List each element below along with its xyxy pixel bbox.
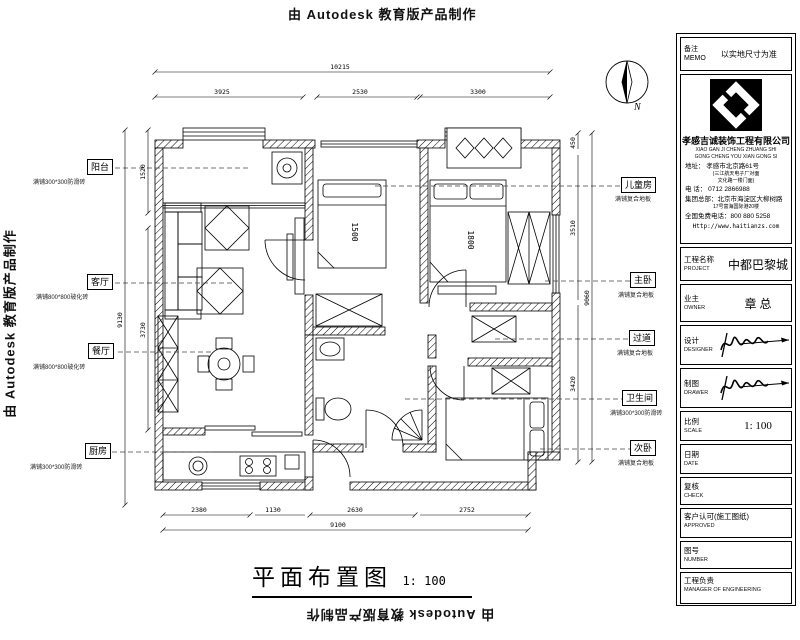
svg-text:3925: 3925 <box>214 88 230 96</box>
room-label-second-bed: 次卧 <box>630 440 656 456</box>
field-date: 日期 DATE <box>680 444 792 474</box>
master-bed-size: 1800 <box>466 230 475 249</box>
svg-text:1130: 1130 <box>265 506 281 514</box>
field-designer: 设计 DESIGNER <box>680 325 792 365</box>
field-scale: 比例 SCALE 1: 100 <box>680 411 792 441</box>
field-check: 复核 CHECK <box>680 477 792 505</box>
company-address: 地址： 孝感市北京路61号 <box>681 163 791 171</box>
field-scale-label-cn: 比例 <box>684 417 728 428</box>
memo-box: 备注 MEMO 以实地尺寸为准 <box>680 37 792 71</box>
field-number-label-en: NUMBER <box>684 557 728 564</box>
room-label-kitchen: 厨房 <box>85 443 111 459</box>
svg-text:3300: 3300 <box>470 88 486 96</box>
svg-text:9130: 9130 <box>116 312 124 328</box>
drawer-signature <box>711 371 792 405</box>
company-hq-2: 17号富海国际港20楼 <box>681 204 791 211</box>
company-phone: 电 话： 0712 2866988 <box>681 186 791 194</box>
tv-unit <box>287 218 304 294</box>
field-drawer: 制图 DRAWER <box>680 368 792 408</box>
field-project-label-cn: 工程名称 <box>684 255 728 266</box>
room-finish-dining: 满铺800*800玻化砖 <box>33 365 85 371</box>
field-scale-label-en: SCALE <box>684 428 728 435</box>
field-project-label-en: PROJECT <box>684 266 728 273</box>
field-owner: 业主 OWNER 章 总 <box>680 284 792 322</box>
svg-text:2380: 2380 <box>191 506 207 514</box>
svg-text:10215: 10215 <box>330 63 350 71</box>
svg-text:3510: 3510 <box>569 220 577 236</box>
room-label-living: 客厅 <box>87 274 113 290</box>
company-website: Http://www.haitianzs.com <box>681 223 791 230</box>
balcony-washer <box>272 152 302 184</box>
walls <box>155 140 560 490</box>
field-project: 工程名称 PROJECT 中都巴黎城 <box>680 247 792 281</box>
field-approved-label-en: APPROVED <box>684 523 788 530</box>
company-address-note-2: 文化路一楼门面) <box>681 178 791 185</box>
child-wardrobe <box>316 294 382 326</box>
svg-text:2752: 2752 <box>459 506 475 514</box>
living-room-sofa <box>165 203 202 319</box>
field-approved-label-cn: 客户认可(施工图纸) <box>684 512 788 523</box>
room-finish-child-room: 满铺复合地板 <box>615 197 651 203</box>
room-finish-corridor: 满铺复合地板 <box>617 351 653 357</box>
drawing-title: 平面布置图 1: 100 <box>252 558 472 598</box>
svg-text:3420: 3420 <box>569 376 577 392</box>
field-owner-label-cn: 业主 <box>684 294 728 305</box>
field-project-value: 中都巴黎城 <box>728 256 788 273</box>
field-date-label-cn: 日期 <box>684 450 728 461</box>
room-label-master: 主卧 <box>630 272 656 288</box>
svg-text:9060: 9060 <box>583 290 591 306</box>
master-bay-rug <box>447 128 521 168</box>
field-date-label-en: DATE <box>684 461 728 468</box>
room-label-dining: 餐厅 <box>88 343 114 359</box>
second-bed <box>446 398 548 460</box>
field-check-label-en: CHECK <box>684 493 728 500</box>
field-scale-value: 1: 100 <box>728 420 788 432</box>
svg-text:2630: 2630 <box>347 506 363 514</box>
drawing-sheet: 由 Autodesk 教育版产品制作 由 Autodesk 教育版产品制作 由 … <box>0 0 800 640</box>
living-room-rugs <box>197 206 249 314</box>
bathroom-basin <box>316 338 344 360</box>
bathroom-toilet <box>316 398 351 420</box>
room-finish-second-bed: 满铺复合地板 <box>618 461 654 467</box>
memo-value: 以实地尺寸为准 <box>710 49 788 60</box>
room-finish-kitchen: 满铺300*300防滑砖 <box>30 465 82 471</box>
room-finish-living: 满铺800*800玻化砖 <box>36 295 88 301</box>
room-label-bathroom: 卫生间 <box>622 390 657 406</box>
company-name: 孝感吉诚装饰工程有限公司 <box>681 134 791 147</box>
company-pinyin-1: XIAO GAN JI CHENG ZHUANG SHI <box>681 147 791 154</box>
field-owner-label-en: OWNER <box>684 305 728 312</box>
company-logo-icon <box>710 79 762 131</box>
field-check-label-cn: 复核 <box>684 482 728 493</box>
field-number: 图号 NUMBER <box>680 541 792 569</box>
room-label-balcony: 阳台 <box>87 159 113 175</box>
field-owner-value: 章 总 <box>728 295 788 312</box>
field-manager: 工程负责 MANAGER OF ENGINEERING <box>680 572 792 604</box>
room-finish-bathroom: 满铺300*300防滑砖 <box>610 411 662 417</box>
company-box: 孝感吉诚装饰工程有限公司 XIAO GAN JI CHENG ZHUANG SH… <box>680 74 792 244</box>
svg-text:9100: 9100 <box>330 521 346 529</box>
child-bed-size: 1500 <box>350 222 359 241</box>
bathroom-shower <box>392 410 422 440</box>
company-hotline: 全国免费电话：800 880 5258 <box>681 213 791 221</box>
north-arrow-icon: N <box>606 61 648 113</box>
field-number-label-cn: 图号 <box>684 546 728 557</box>
svg-text:1520: 1520 <box>139 164 147 180</box>
svg-text:3730: 3730 <box>139 322 147 338</box>
svg-text:2530: 2530 <box>352 88 368 96</box>
memo-label-en: MEMO <box>684 54 706 63</box>
title-block: 备注 MEMO 以实地尺寸为准 孝感吉诚装饰工程有限公司 XIAO GAN JI… <box>676 33 796 606</box>
designer-signature <box>711 328 792 362</box>
master-wardrobe <box>508 212 550 284</box>
field-approved: 客户认可(施工图纸) APPROVED <box>680 508 792 538</box>
memo-label-cn: 备注 <box>684 45 706 54</box>
field-manager-label-en: MANAGER OF ENGINEERING <box>684 587 788 594</box>
room-label-child-room: 儿童房 <box>621 177 656 193</box>
drawing-title-text: 平面布置图 <box>252 565 392 590</box>
svg-text:450: 450 <box>569 137 577 149</box>
room-finish-balcony: 满铺300*300防滑砖 <box>33 180 85 186</box>
field-manager-label-cn: 工程负责 <box>684 576 788 587</box>
room-label-corridor: 过道 <box>629 330 655 346</box>
company-pinyin-2: GONG CHENG YOU XIAN GONG SI <box>681 154 791 161</box>
dining-table <box>198 338 254 390</box>
drawing-scale-text: 1: 100 <box>402 574 445 588</box>
room-finish-master: 满铺复合地板 <box>618 293 654 299</box>
second-bedroom-wardrobe <box>492 368 530 394</box>
corridor-cabinet <box>472 316 516 342</box>
north-label: N <box>633 102 642 113</box>
kitchen-counter <box>163 452 305 480</box>
